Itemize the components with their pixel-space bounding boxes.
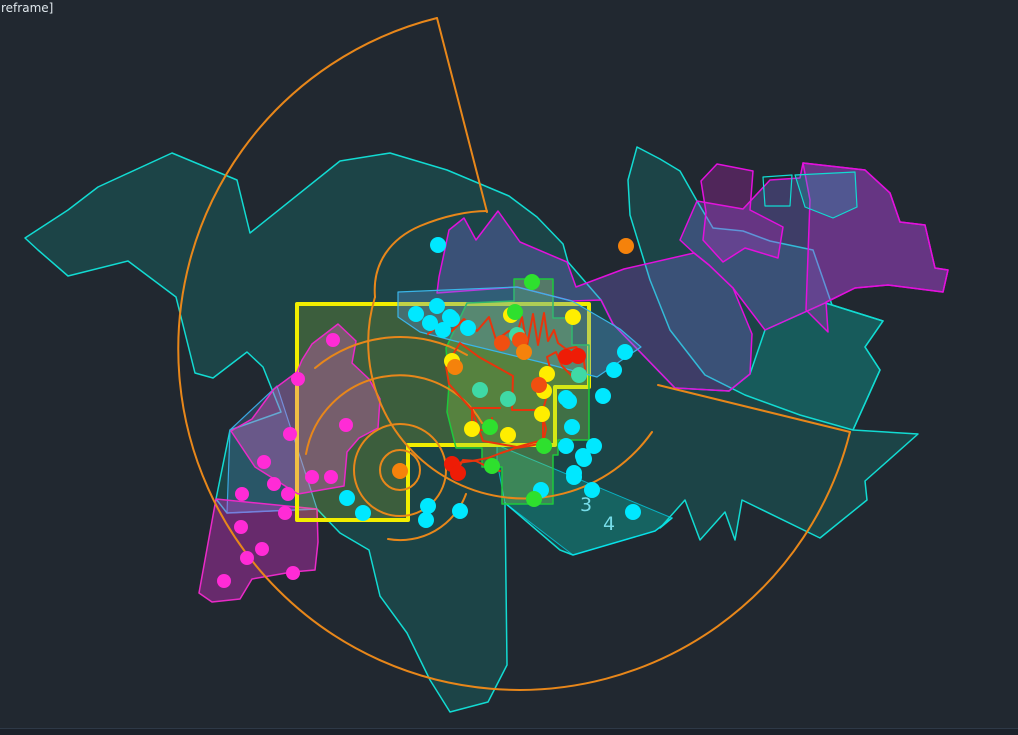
cyan-dots-8 — [339, 490, 355, 506]
cyan-dots-23 — [625, 504, 641, 520]
red-dots-1 — [570, 348, 586, 364]
magenta-dots-0 — [326, 333, 340, 347]
cyan-dots-11 — [418, 512, 434, 528]
orange-red-dots-0 — [494, 335, 510, 351]
green-dots-5 — [526, 491, 542, 507]
cyan-dots-9 — [355, 505, 371, 521]
cyan-dots-6 — [435, 322, 451, 338]
green-dots-1 — [507, 304, 523, 320]
yellow-dots-1 — [565, 309, 581, 325]
magenta-dots-15 — [286, 566, 300, 580]
cad-viewport[interactable]: reframe] 34 — [0, 0, 1018, 735]
cyan-dots-25 — [606, 362, 622, 378]
cyan-dots-10 — [420, 498, 436, 514]
orange-red-dots-2 — [531, 377, 547, 393]
magenta-dots-13 — [240, 551, 254, 565]
spring-dots-3 — [571, 367, 587, 383]
yellow-dots-7 — [500, 427, 516, 443]
magenta-dots-7 — [305, 470, 319, 484]
magenta-dots-1 — [291, 372, 305, 386]
cyan-dots-27 — [561, 393, 577, 409]
spring-dots-1 — [472, 382, 488, 398]
magenta-dots-11 — [278, 506, 292, 520]
drawing-canvas[interactable]: 34 — [0, 0, 1018, 735]
cyan-dots-14 — [564, 419, 580, 435]
cyan-dots-0 — [430, 237, 446, 253]
orange-dots-1 — [447, 359, 463, 375]
spring-dots-2 — [500, 391, 516, 407]
cyan-dots-20 — [566, 469, 582, 485]
cyan-dots-12 — [452, 503, 468, 519]
magenta-dots-4 — [235, 487, 249, 501]
yellow-dots-5 — [534, 406, 550, 422]
orange-dots-3 — [392, 463, 408, 479]
cyan-dots-26 — [595, 388, 611, 404]
bottom-edge — [0, 729, 1018, 735]
command-echo-text: reframe] — [1, 1, 53, 15]
green-dots-0 — [524, 274, 540, 290]
orange-dots-2 — [618, 238, 634, 254]
magenta-dots-2 — [283, 427, 297, 441]
cyan-dots-15 — [558, 438, 574, 454]
magenta-dots-12 — [255, 542, 269, 556]
green-dots-4 — [484, 458, 500, 474]
cyan-dots-7 — [460, 320, 476, 336]
cyan-dots-3 — [429, 298, 445, 314]
magenta-dots-10 — [234, 520, 248, 534]
green-dots-3 — [536, 438, 552, 454]
cyan-dots-24 — [617, 344, 633, 360]
cyan-dots-21 — [576, 451, 592, 467]
magenta-dots-8 — [324, 470, 338, 484]
yellow-dots-6 — [464, 421, 480, 437]
magenta-dots-6 — [281, 487, 295, 501]
label-4: 4 — [603, 513, 615, 535]
cyan-dots-2 — [408, 306, 424, 322]
red-dots-3 — [450, 465, 466, 481]
cyan-dots-18 — [586, 438, 602, 454]
orange-dots-0 — [516, 344, 532, 360]
green-dots-2 — [482, 419, 498, 435]
magenta-dots-3 — [257, 455, 271, 469]
label-3: 3 — [580, 494, 592, 516]
magenta-dots-9 — [339, 418, 353, 432]
magenta-dots-14 — [217, 574, 231, 588]
magenta-dots-5 — [267, 477, 281, 491]
